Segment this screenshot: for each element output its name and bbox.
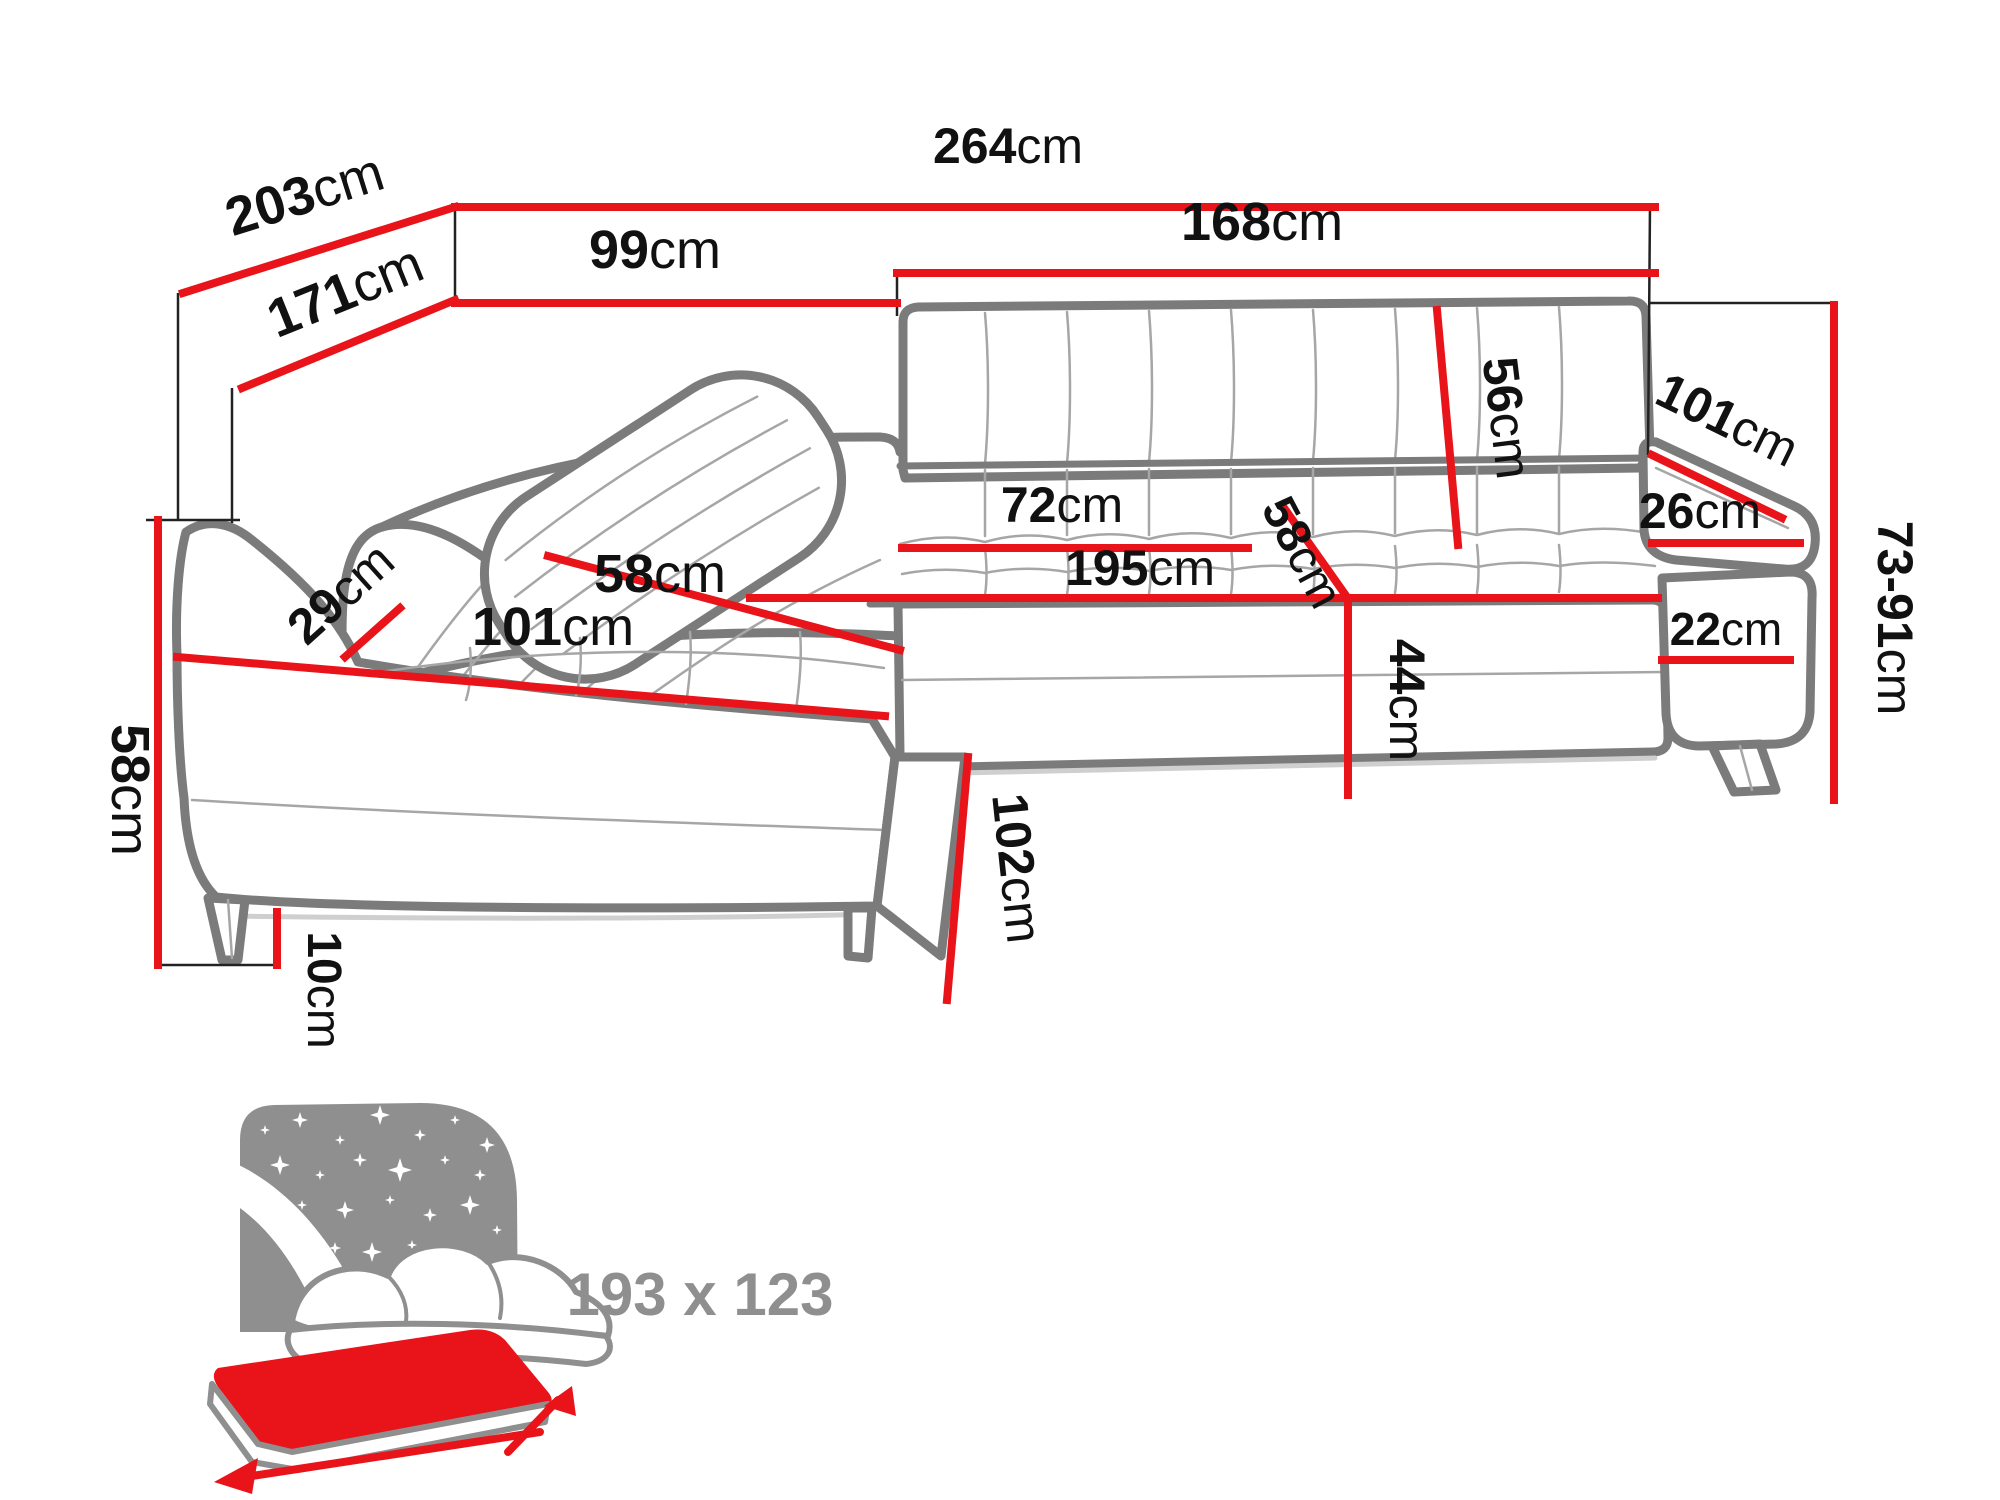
dimension-label-chaise-seat-width: 58cm (594, 544, 726, 604)
dimension-label-leg-height: 10cm (297, 931, 350, 1048)
dimension-label-seat-height: 44cm (1379, 639, 1435, 761)
dimension-overall-width: 264cm (455, 118, 1655, 207)
sofa-right-base-panel (898, 600, 1668, 768)
dimension-chaise-depth: 171cm (242, 233, 455, 388)
bed-size-label: 193 x 123 (567, 1261, 834, 1328)
sofa-right-leg (1712, 744, 1776, 792)
sleeping-function-icon: 193 x 123 (193, 1103, 834, 1494)
dimension-label-back-height-range: 73-91cm (1867, 521, 1923, 716)
dimension-leg-height: 10cm (277, 912, 350, 1049)
dimension-label-armrest-width: 26cm (1639, 483, 1761, 539)
dimension-label-overall-width: 264cm (933, 118, 1083, 174)
dimension-corner-width: 99cm (455, 220, 897, 303)
dimension-label-armrest-above-seat: 22cm (1670, 603, 1783, 655)
dimension-seat-length: 195cm (750, 540, 1658, 598)
dimension-armrest-above-seat: 22cm (1662, 603, 1790, 660)
dimension-label-seat-depth: 72cm (1001, 477, 1123, 533)
sofa-chaise-rear-leg (848, 908, 872, 958)
dimension-label-seat-length: 195cm (1065, 540, 1215, 596)
dimension-chaise-side-length: 102cm (947, 757, 1053, 1000)
dimension-side-height: 58cm (100, 520, 160, 965)
dimension-label-chaise-length: 101cm (472, 597, 634, 657)
dimension-label-side-height: 58cm (100, 724, 160, 856)
dimension-label-seat-front-width: 168cm (1181, 192, 1343, 252)
dimension-label-corner-width: 99cm (589, 220, 721, 280)
sofa-front-left-leg (208, 898, 245, 960)
dimension-label-chaise-depth: 171cm (259, 233, 432, 349)
diagram-page: 264cm 203cm 171cm 99cm 168cm 56cm 101cm … (0, 0, 2000, 1500)
dimension-back-height-range: 73-91cm (1834, 305, 1923, 800)
dimension-label-chaise-side-length: 102cm (981, 791, 1052, 946)
sofa-dimension-diagram: 264cm 203cm 171cm 99cm 168cm 56cm 101cm … (0, 0, 2000, 1500)
